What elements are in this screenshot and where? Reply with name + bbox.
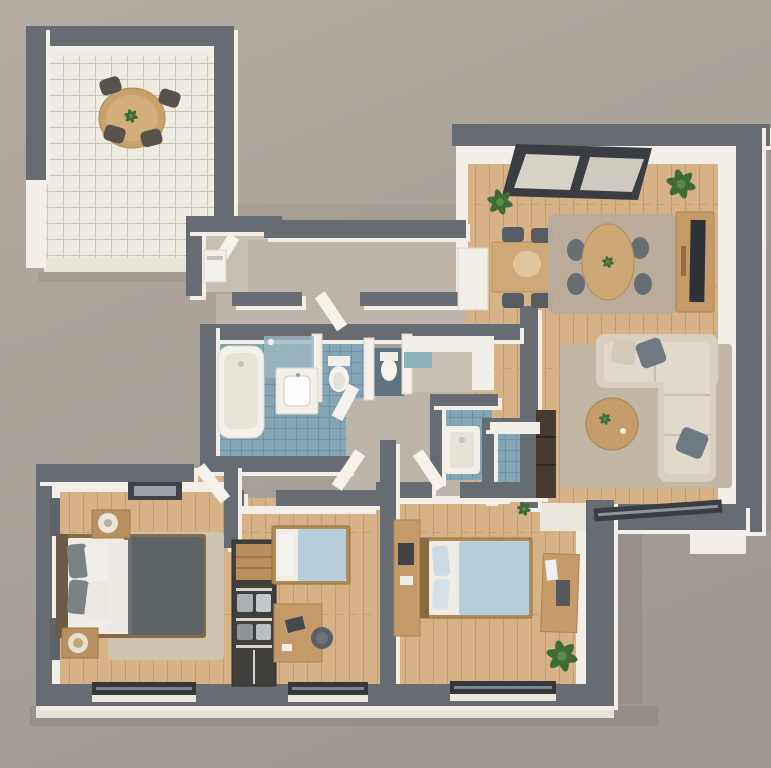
bed-master-duvet [124,537,204,635]
w-patio-top [28,26,234,46]
shower-head [268,339,274,345]
plant-corner-small-center [522,507,526,511]
window-master-bar [96,687,192,690]
oval-chair-4 [634,273,652,295]
closet-shelf-2 [236,618,272,621]
entry-floor [248,240,464,296]
vanity-faucet [296,373,300,377]
bathtub-drain [238,361,244,367]
sideboard-white [458,248,488,310]
floor-plan-rendering [0,0,771,768]
bed-middle-duvet [298,529,346,581]
curtain-master-left-1 [50,498,60,536]
vanity-basin [284,376,310,406]
w-entry-south-left [232,292,302,306]
dining-chair-3 [502,293,524,308]
monitor-right [556,580,570,606]
coffee-table-cup [620,428,626,434]
plant-living-left-center [496,198,504,206]
w-bed-top-master [36,464,194,482]
toilet-1-seat [333,372,345,390]
w-living-right [736,124,762,532]
bed-right-headboard [420,538,429,618]
paper-right [545,559,558,580]
w-patio-right [214,40,234,232]
bed-middle-pillow [279,534,293,576]
washer-door [207,256,223,260]
w-bath2-top [430,394,498,406]
sill-right [450,694,556,701]
oval-chair-2 [567,273,585,295]
closet-clothes-4 [256,624,271,640]
desk-left-item [398,543,414,565]
dark-cabinet-shelf-2 [536,464,556,466]
closet-dresser-line-2 [236,567,272,569]
closet-clothes-1 [237,594,253,612]
coffee-table [586,398,638,450]
w-bed-div1 [224,464,238,548]
closet-pole [253,650,255,684]
tv-screen [689,220,705,302]
patio-table-plant-center [129,114,133,118]
bed-master-headboard [56,534,68,638]
dining-placemat [513,251,541,277]
vent-master-inner [134,486,176,496]
paper-middle [282,644,292,651]
washer [204,250,226,282]
window-middle-bar [292,687,364,690]
closet-clothes-3 [237,624,253,640]
bed-right-pillow-1 [432,545,451,576]
closet-dresser [236,544,272,580]
sofa-seam-2 [664,394,710,396]
desk-left-paper [400,576,413,585]
w-entry-top [264,220,466,238]
dining-chair-1 [502,227,524,242]
lamp-2-inner [73,638,83,648]
closet-shelf-3 [236,645,272,648]
w-bed-top-middle-b [276,490,380,506]
nook-counter-top [404,336,494,352]
sofa-pillow-beige [610,338,638,366]
sill-master [92,695,196,702]
bed-right-duvet [459,541,529,615]
shower-tray-drain [459,437,465,443]
sill-middle [288,695,368,702]
dark-cabinet-shelf-1 [536,436,556,438]
bed-master-sheet-fold [108,540,128,634]
w-bed-right [586,500,614,702]
div-wc1-wc2 [364,338,374,400]
w-living-top [452,124,770,146]
nook-counter-right [472,352,494,390]
coffee-table-plant-center [603,417,607,421]
closet-shelf-1 [236,588,272,591]
closet-dresser-line-1 [236,556,272,558]
face-patio-left-low [26,178,46,268]
toilet-2-bowl [381,359,397,381]
w-bath-left [200,324,216,472]
toilet-1-tank [328,356,350,366]
nook-splash [404,352,432,368]
w-patio-left [26,26,46,180]
w-entry-south-right [360,292,466,306]
oval-table-plant-center [606,260,610,264]
floor-plan-image: Isometric 3D rendered floor plan of an a… [0,0,771,768]
window-right-bar [454,686,552,689]
w-bath-bottom [200,456,350,472]
tv-console-slot [681,246,686,276]
lamp-1-inner [104,519,112,527]
closet-clothes-2 [256,594,271,612]
plant-living-right-center [677,180,686,189]
plant-right-bedroom-center [557,651,567,661]
w-bed-top-right-b [460,482,544,498]
chair-middle-inner [316,632,328,644]
shower2-ledge [490,422,540,434]
w-bed-left [36,464,52,704]
bed-right-pillow-2 [432,578,451,609]
